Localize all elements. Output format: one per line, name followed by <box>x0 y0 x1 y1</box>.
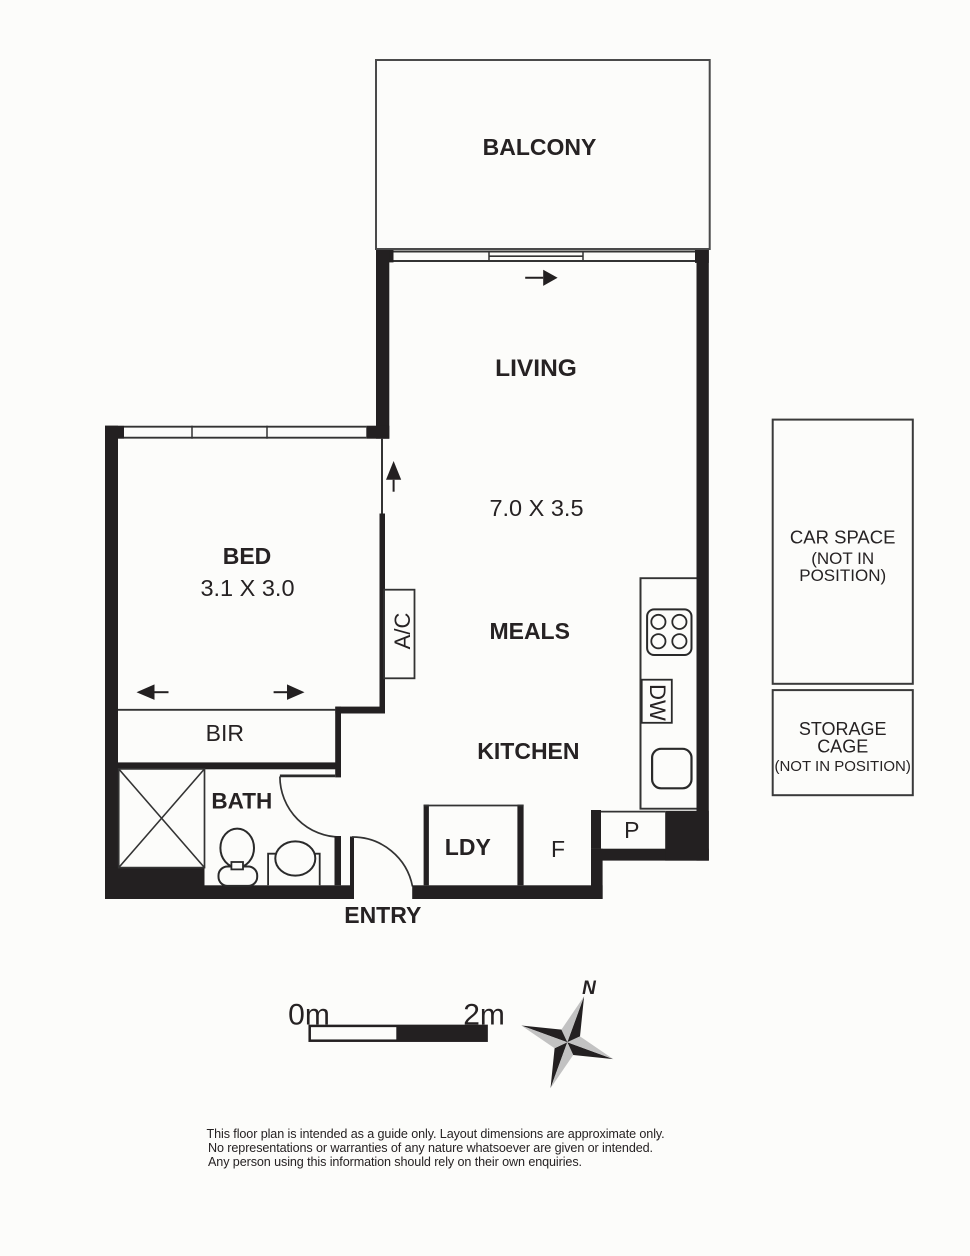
svg-text:BATH: BATH <box>211 788 272 813</box>
svg-text:No representations or warranti: No representations or warranties of any … <box>208 1141 653 1155</box>
svg-text:This floor plan is intended as: This floor plan is intended as a guide o… <box>207 1127 665 1141</box>
svg-text:LIVING: LIVING <box>495 355 577 382</box>
svg-text:DW: DW <box>645 684 670 721</box>
svg-text:BED: BED <box>223 543 272 569</box>
svg-text:POSITION): POSITION) <box>799 566 886 585</box>
svg-text:N: N <box>582 978 597 999</box>
svg-text:LDY: LDY <box>445 834 491 860</box>
svg-text:MEALS: MEALS <box>489 618 570 644</box>
svg-text:F: F <box>551 836 565 862</box>
svg-text:ENTRY: ENTRY <box>344 902 421 928</box>
svg-text:KITCHEN: KITCHEN <box>477 738 579 764</box>
svg-text:BALCONY: BALCONY <box>483 134 597 160</box>
svg-text:7.0 X 3.5: 7.0 X 3.5 <box>489 495 583 521</box>
svg-text:CAR SPACE: CAR SPACE <box>790 527 896 548</box>
svg-text:A/C: A/C <box>390 613 415 650</box>
svg-text:3.1 X 3.0: 3.1 X 3.0 <box>200 575 294 601</box>
svg-text:(NOT IN POSITION): (NOT IN POSITION) <box>774 758 910 775</box>
svg-text:BIR: BIR <box>206 720 244 746</box>
svg-text:Any person using this informat: Any person using this information should… <box>208 1155 582 1169</box>
svg-text:P: P <box>624 817 639 843</box>
svg-text:CAGE: CAGE <box>817 737 868 757</box>
